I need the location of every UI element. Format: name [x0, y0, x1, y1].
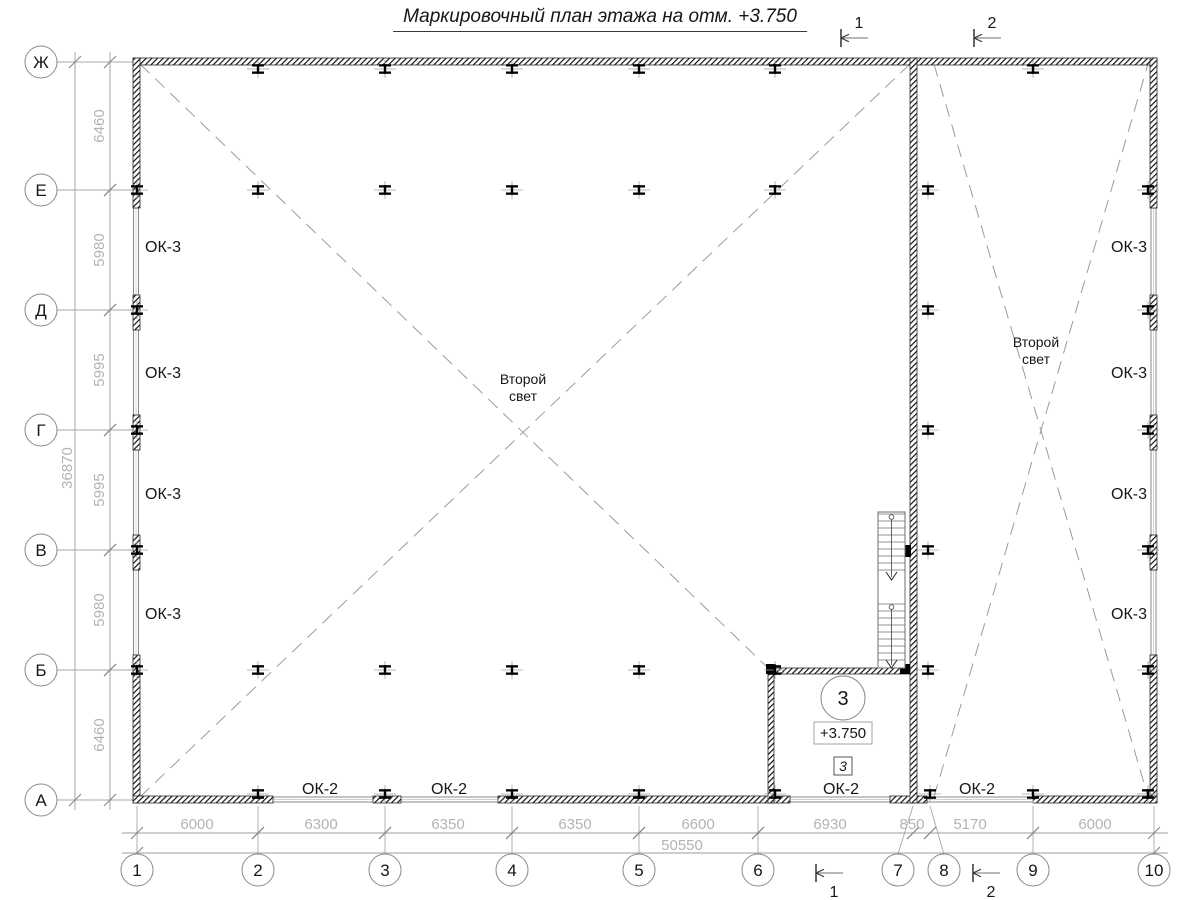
- column-web: [774, 64, 776, 74]
- wall: [133, 58, 1157, 65]
- section-arrowhead: [974, 38, 982, 42]
- column-mark: [501, 181, 523, 199]
- column-mark: [126, 421, 148, 439]
- section-mark: 1: [816, 864, 843, 900]
- dimensions-layer: 6460598059955995598064603687060006300635…: [59, 52, 1168, 859]
- bottom-dim-value: 6350: [431, 816, 464, 833]
- column-web: [927, 305, 929, 315]
- left-dim-value: 5995: [91, 473, 108, 506]
- col-axis-label: 3: [380, 861, 389, 880]
- column-mark: [374, 661, 396, 679]
- row-axis-label: Е: [35, 181, 46, 200]
- column-web: [257, 789, 259, 799]
- column-mark: [247, 661, 269, 679]
- bottom-dim-value: 6600: [681, 816, 714, 833]
- column-mark: [917, 421, 939, 439]
- void-diagonal-dashed: [140, 64, 768, 668]
- bottom-dim-value: 6350: [558, 816, 591, 833]
- bottom-dim-value: 6000: [1078, 816, 1111, 833]
- column-mark: [917, 661, 939, 679]
- wall: [910, 58, 917, 803]
- section-number: 2: [987, 884, 996, 900]
- column-mark: [501, 661, 523, 679]
- column-mark: [628, 181, 650, 199]
- left-dim-value: 6460: [91, 718, 108, 751]
- column-mark: [917, 541, 939, 559]
- col-axis-label: 1: [132, 861, 141, 880]
- col-axis-leader: [930, 806, 944, 854]
- door-mark-number: 3: [839, 758, 847, 774]
- axis-lines-layer: [57, 62, 1154, 854]
- column-web: [638, 64, 640, 74]
- column-web: [774, 789, 776, 799]
- col-axis-label: 2: [253, 861, 262, 880]
- window-mark-label: ОК-3: [1111, 486, 1147, 503]
- left-dim-value: 5980: [91, 233, 108, 266]
- column-web: [638, 185, 640, 195]
- column-mark: [917, 301, 939, 319]
- stair-layer: [878, 512, 905, 668]
- row-axis-label: Б: [35, 661, 46, 680]
- column-web: [384, 665, 386, 675]
- left-dim-value: 5995: [91, 353, 108, 386]
- column-web: [1147, 665, 1149, 675]
- section-mark: 1: [841, 15, 868, 47]
- section-number: 2: [988, 15, 997, 32]
- column-mark: [126, 661, 148, 679]
- column-mark: [628, 661, 650, 679]
- column-mark: [126, 541, 148, 559]
- column-web: [1032, 64, 1034, 74]
- col-axis-label: 9: [1028, 861, 1037, 880]
- col-axis-label: 4: [507, 861, 516, 880]
- walls-layer: [133, 58, 1157, 803]
- column-mark: [764, 661, 786, 679]
- section-arrowhead: [841, 34, 849, 38]
- column-web: [927, 425, 929, 435]
- bottom-dim-value: 5170: [953, 816, 986, 833]
- second-light-label: Второй: [500, 371, 546, 387]
- section-arrowhead: [974, 34, 982, 38]
- column-web: [638, 665, 640, 675]
- column-mark: [247, 181, 269, 199]
- column-mark: [917, 181, 939, 199]
- window-mark-label: ОК-3: [1111, 606, 1147, 623]
- section-arrowhead: [841, 38, 849, 42]
- bottom-dim-value: 6000: [180, 816, 213, 833]
- column-web: [511, 789, 513, 799]
- column-web: [1147, 425, 1149, 435]
- column-web: [511, 64, 513, 74]
- section-number: 1: [830, 884, 839, 900]
- column-web: [136, 665, 138, 675]
- room-number: 3: [837, 688, 848, 710]
- column-mark: [374, 181, 396, 199]
- window-mark-label: ОК-2: [302, 781, 338, 798]
- section-mark: 2: [973, 864, 1000, 900]
- column-web: [774, 185, 776, 195]
- bottom-dim-value: 6930: [813, 816, 846, 833]
- bottom-dim-value: 6300: [304, 816, 337, 833]
- window-mark-label: ОК-3: [1111, 239, 1147, 256]
- window-mark-label: ОК-2: [823, 781, 859, 798]
- wall: [1033, 796, 1157, 803]
- column-web: [1147, 789, 1149, 799]
- section-arrowhead: [816, 869, 824, 873]
- window-mark-label: ОК-3: [145, 365, 181, 382]
- column-web: [136, 185, 138, 195]
- elevation-value: +3.750: [820, 725, 866, 742]
- wall: [1150, 655, 1157, 803]
- left-total-dim-value: 36870: [59, 447, 76, 489]
- column-web: [136, 305, 138, 315]
- column-mark: [764, 181, 786, 199]
- column-web: [638, 789, 640, 799]
- row-axis-label: Ж: [33, 53, 49, 72]
- left-dim-value: 6460: [91, 109, 108, 142]
- col-axis-label: 5: [634, 861, 643, 880]
- room-marks-layer: 3+3.7503: [814, 676, 872, 775]
- col-axis-label: 10: [1145, 861, 1164, 880]
- window-mark-label: ОК-3: [1111, 365, 1147, 382]
- bottom-total-dim-value: 50550: [661, 837, 703, 854]
- row-axis-label: В: [35, 541, 46, 560]
- column-web: [257, 185, 259, 195]
- column-web: [1147, 545, 1149, 555]
- column-web: [257, 665, 259, 675]
- column-web: [927, 185, 929, 195]
- floor-plan-page: Маркировочный план этажа на отм. +3.750 …: [0, 0, 1200, 900]
- col-axis-label: 6: [753, 861, 762, 880]
- column-web: [774, 665, 776, 675]
- section-arrowhead: [816, 873, 824, 877]
- section-arrowhead: [973, 869, 981, 873]
- section-mark: 2: [974, 15, 1001, 47]
- bottom-dim-value: 850: [899, 816, 924, 833]
- window-mark-label: ОК-2: [431, 781, 467, 798]
- column-web: [384, 64, 386, 74]
- section-number: 1: [855, 15, 864, 32]
- column-web: [927, 665, 929, 675]
- column-web: [136, 425, 138, 435]
- wall: [890, 796, 927, 803]
- window-mark-label: ОК-3: [145, 486, 181, 503]
- row-axis-label: Г: [36, 421, 45, 440]
- columns-layer: [126, 60, 1159, 803]
- col-axis-label: 8: [939, 861, 948, 880]
- column-web: [927, 545, 929, 555]
- column-web: [511, 185, 513, 195]
- second-light-label: свет: [509, 388, 538, 404]
- column-web: [384, 185, 386, 195]
- column-web: [257, 64, 259, 74]
- column-web: [1147, 305, 1149, 315]
- column-web: [384, 789, 386, 799]
- column-web: [929, 789, 931, 799]
- diagonals-layer: [140, 64, 1148, 797]
- wall: [133, 655, 140, 803]
- second-light-label: Второй: [1013, 334, 1059, 350]
- column-web: [1032, 789, 1034, 799]
- column-web: [1147, 185, 1149, 195]
- column-mark: [126, 301, 148, 319]
- grid-bubbles-layer: ЖЕДГВБА12345678910: [25, 46, 1170, 886]
- left-dim-value: 5980: [91, 593, 108, 626]
- wall: [768, 668, 774, 803]
- window-mark-label: ОК-2: [959, 781, 995, 798]
- window-mark-label: ОК-3: [145, 239, 181, 256]
- window-mark-label: ОК-3: [145, 606, 181, 623]
- section-arrowhead: [973, 873, 981, 877]
- void-diagonal-dashed: [140, 64, 910, 797]
- row-axis-label: Д: [35, 301, 47, 320]
- column-web: [511, 665, 513, 675]
- floor-plan-drawing: 6460598059955995598064603687060006300635…: [0, 0, 1200, 900]
- wall: [768, 668, 910, 674]
- labels-layer: ОК-3ОК-3ОК-3ОК-3ОК-3ОК-3ОК-3ОК-3ОК-2ОК-2…: [145, 239, 1147, 798]
- column-web: [136, 545, 138, 555]
- col-axis-label: 7: [893, 861, 902, 880]
- column-mark: [126, 181, 148, 199]
- second-light-label: свет: [1022, 351, 1051, 367]
- windows-layer: [134, 208, 1157, 802]
- row-axis-label: А: [35, 791, 47, 810]
